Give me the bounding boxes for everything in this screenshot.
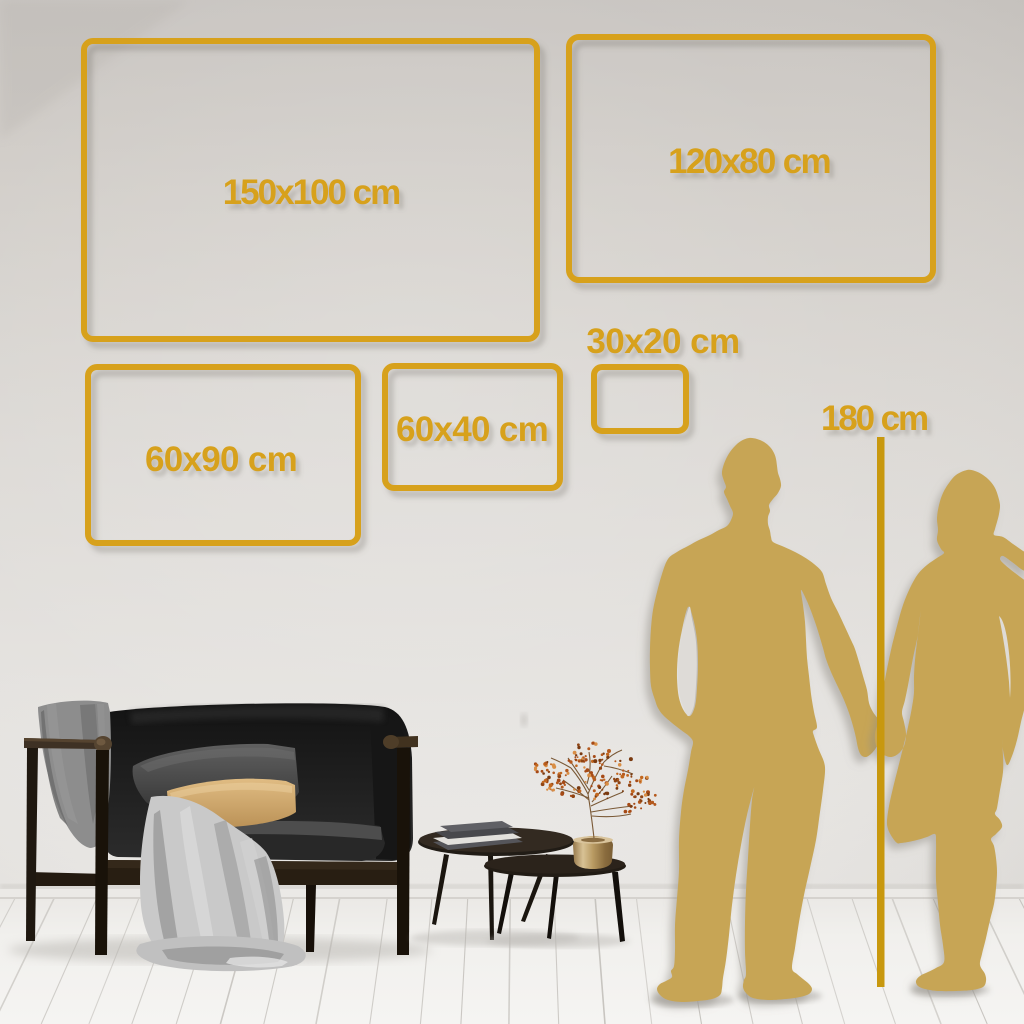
svg-text:150x100 cm: 150x100 cm (223, 173, 400, 212)
svg-text:120x80 cm: 120x80 cm (668, 142, 830, 181)
svg-text:60x40 cm: 60x40 cm (396, 410, 548, 449)
svg-text:30x20 cm: 30x20 cm (586, 322, 739, 361)
svg-text:180 cm: 180 cm (821, 399, 927, 438)
svg-text:60x90 cm: 60x90 cm (145, 440, 297, 479)
